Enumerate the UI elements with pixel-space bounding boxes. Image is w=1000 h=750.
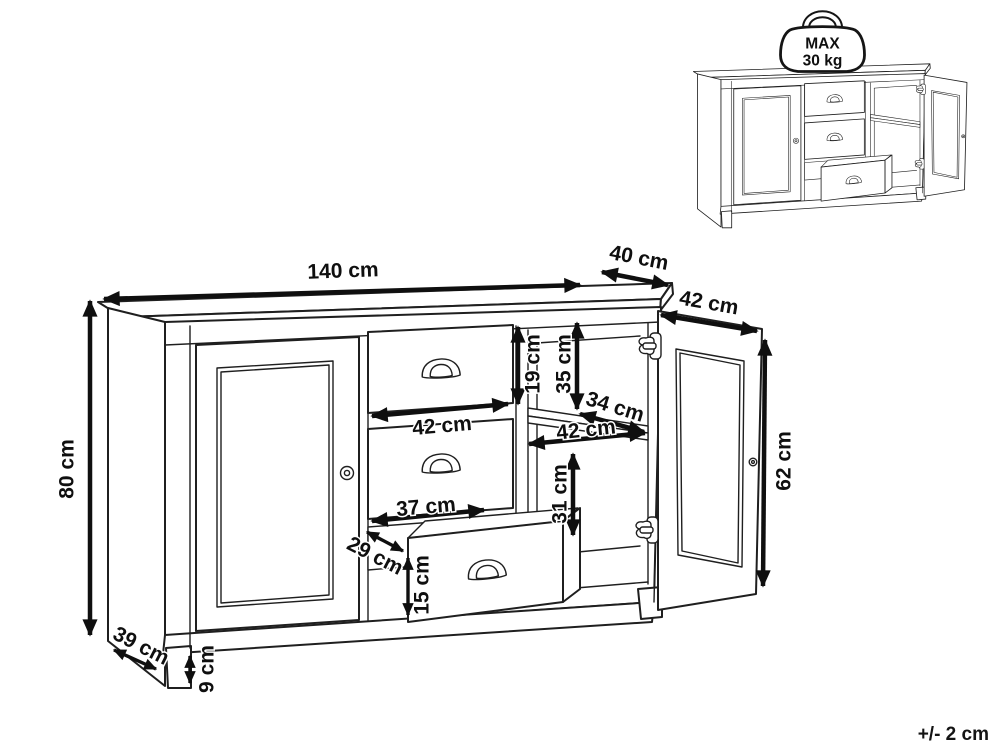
left-door (196, 337, 359, 631)
tolerance-note: +/- 2 cm (918, 724, 989, 745)
svg-text:35 cm: 35 cm (553, 334, 576, 394)
max-load-label-1: MAX (805, 36, 840, 53)
svg-text:31 cm: 31 cm (549, 464, 572, 524)
max-load-label-2: 30 kg (803, 53, 843, 70)
diagram-canvas: 140 cm 40 cm 80 cm 39 cm 9 cm 19 cm 35 c… (0, 0, 1000, 750)
dim-drawer-front-height: 19 cm (518, 327, 545, 404)
svg-text:9 cm: 9 cm (196, 645, 219, 693)
dim-drawer-inner-height: 15 cm (408, 555, 434, 615)
drawer-top (368, 325, 513, 413)
svg-text:15 cm: 15 cm (411, 555, 434, 615)
svg-text:19 cm: 19 cm (522, 334, 545, 394)
right-door-open (658, 311, 762, 610)
svg-text:140 cm: 140 cm (307, 258, 379, 283)
svg-text:62 cm: 62 cm (773, 431, 796, 491)
dimension-diagram-page: 140 cm 40 cm 80 cm 39 cm 9 cm 19 cm 35 c… (0, 0, 1000, 750)
dim-lower-compartment-height: 31 cm (549, 454, 574, 535)
svg-text:80 cm: 80 cm (56, 439, 79, 499)
